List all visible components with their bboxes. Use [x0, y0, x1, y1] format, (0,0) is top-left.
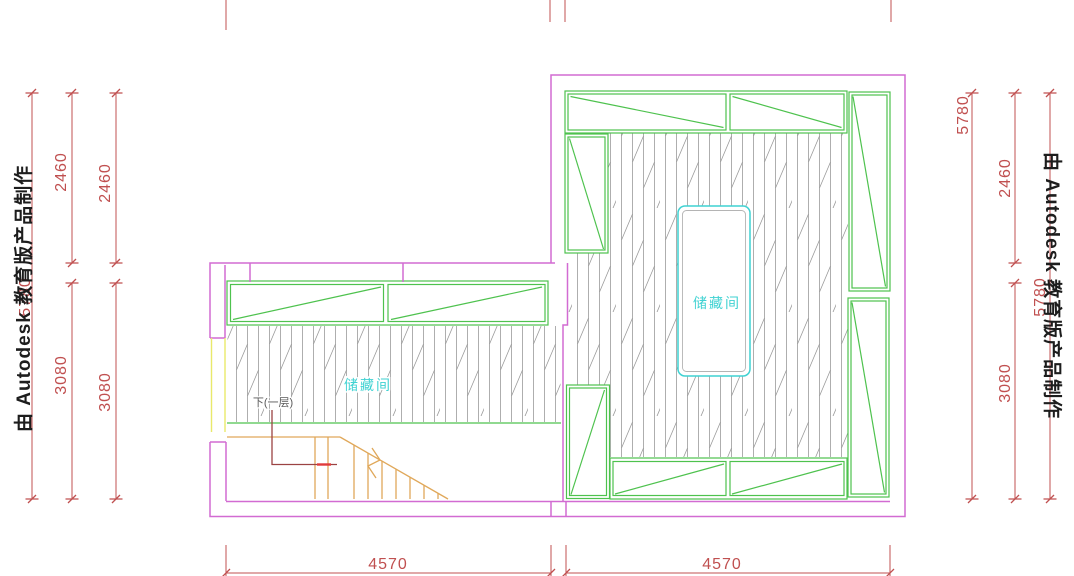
- right-room-right-cabinets: [848, 92, 890, 497]
- watermark-right: 由 Autodesk 教育版产品制作: [1041, 152, 1064, 419]
- dim-left-upper-2: 2460: [97, 163, 114, 203]
- dim-right-upper: 2460: [997, 158, 1014, 198]
- storage-object: [678, 206, 750, 376]
- right-room-label: 储藏间: [693, 295, 741, 311]
- dim-left-lower-2: 3080: [97, 372, 114, 412]
- dim-left-upper-1: 2460: [53, 152, 70, 192]
- cad-canvas: 2460 2460 3080 3080 5780 5780 2460 3080 …: [0, 0, 1074, 576]
- left-room-label: 储藏间: [344, 377, 392, 393]
- stair-note: 下(一层): [253, 396, 293, 409]
- right-room-bottom-cabinets: [610, 458, 847, 499]
- left-room-top-cabinets: [227, 281, 548, 325]
- dim-left-lower-1: 3080: [53, 355, 70, 395]
- right-room-top-cabinets: [565, 91, 847, 133]
- door-opening: [212, 338, 226, 432]
- dim-bottom-right: 4570: [702, 556, 742, 573]
- watermark-left: 由 Autodesk 教育版产品制作: [12, 165, 35, 432]
- dim-right-lower: 3080: [997, 363, 1014, 403]
- stair-break-mark: [368, 448, 380, 478]
- dim-bottom-left: 4570: [368, 556, 408, 573]
- floor-plan-svg: 2460 2460 3080 3080 5780 5780 2460 3080 …: [0, 0, 1074, 576]
- dim-right-total-1: 5780: [955, 95, 972, 135]
